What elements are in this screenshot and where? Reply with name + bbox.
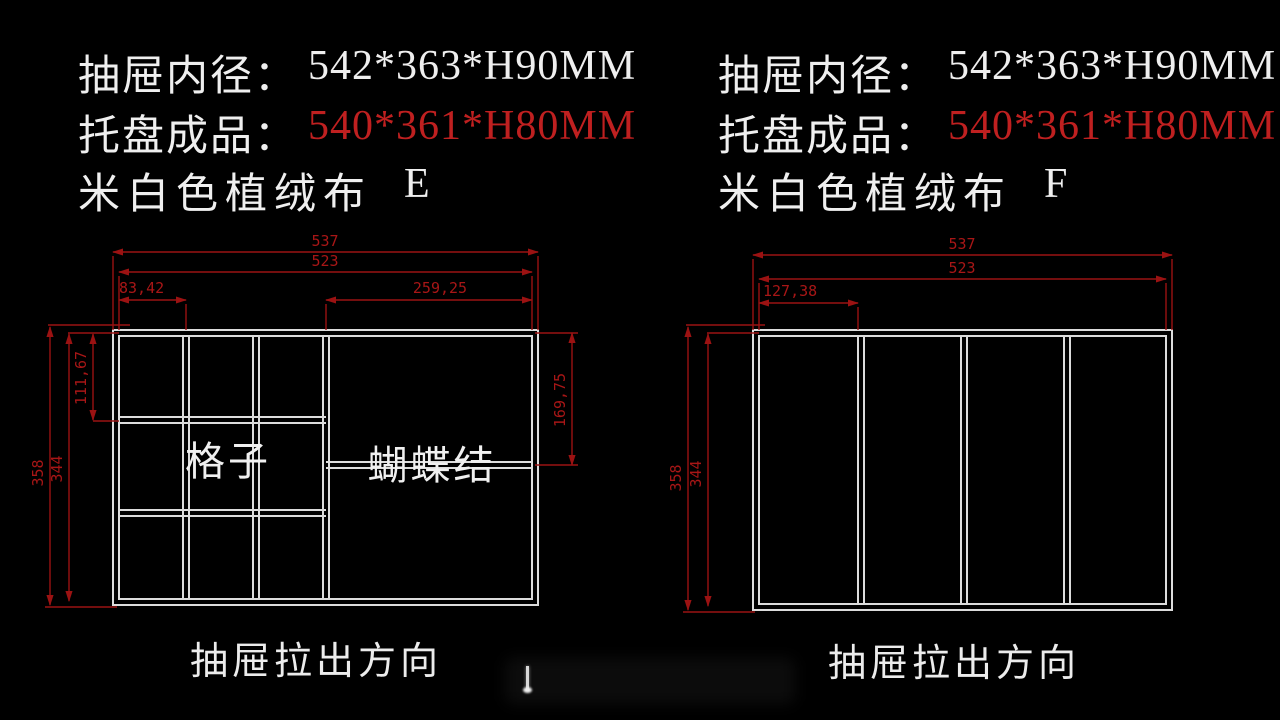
drawer-inner-size-label: 抽屉内径： <box>78 42 298 103</box>
dim-first-cell-height-e: 111,67 <box>72 334 119 421</box>
tray-drawing-e: 格子 蝴蝶结 537 523 83,42 259,25 358 344 111,… <box>20 230 620 630</box>
dim-first-cell-width-label: 83,42 <box>119 279 164 297</box>
panel-f-header-line3: 米白色植绒布 F <box>718 160 1067 221</box>
pull-direction-label-f: 抽屉拉出方向 <box>828 632 1080 687</box>
tray-drawing-f: 537 523 127,38 358 344 <box>670 230 1250 630</box>
dim-bow-divider-height-e: 169,75 <box>535 333 578 465</box>
grid-cell-label: 格子 <box>185 439 271 484</box>
fabric-label: 米白色植绒布 <box>78 160 372 221</box>
dim-first-cell-width-label: 127,38 <box>763 282 817 300</box>
panel-code-letter: F <box>1044 160 1067 208</box>
dim-overall-width-label: 537 <box>948 235 975 253</box>
tray-finished-size-label: 托盘成品： <box>718 102 938 163</box>
tray-finished-size-value: 540*361*H80MM <box>948 102 1276 150</box>
dim-overall-width-label: 537 <box>311 232 338 250</box>
panel-f-header-line2: 托盘成品： 540*361*H80MM <box>718 102 1276 163</box>
inner-rect <box>759 336 1166 604</box>
tray-outline-f <box>753 330 1172 610</box>
watermark-smudge <box>505 658 795 704</box>
drawer-inner-size-value: 542*363*H90MM <box>308 42 636 90</box>
dim-overall-height-label: 358 <box>670 464 685 491</box>
dim-bow-section-width-label: 259,25 <box>413 279 467 297</box>
tray-finished-size-label: 托盘成品： <box>78 102 298 163</box>
panel-e-header-line1: 抽屉内径： 542*363*H90MM <box>78 42 636 103</box>
dim-overall-height-f: 358 <box>670 325 765 612</box>
dim-inner-height-f: 344 <box>687 333 759 606</box>
dim-inner-height-label: 344 <box>687 460 705 487</box>
dim-first-cell-height-label: 111,67 <box>72 351 90 405</box>
dim-inner-width-label: 523 <box>311 252 338 270</box>
dim-inner-width-label: 523 <box>948 259 975 277</box>
dim-overall-height-label: 358 <box>29 459 47 486</box>
drawer-inner-size-value: 542*363*H90MM <box>948 42 1276 90</box>
tray-finished-size-value: 540*361*H80MM <box>308 102 636 150</box>
dim-bow-section-width-e: 259,25 <box>326 279 532 330</box>
pull-direction-label-e: 抽屉拉出方向 <box>190 630 442 685</box>
tray-dividers-f <box>858 336 1070 604</box>
dim-bow-divider-height-label: 169,75 <box>551 373 569 427</box>
outer-rect <box>753 330 1172 610</box>
panel-f-header-line1: 抽屉内径： 542*363*H90MM <box>718 42 1276 103</box>
cursor-artifact <box>526 666 529 691</box>
fabric-label: 米白色植绒布 <box>718 160 1012 221</box>
bow-cell-label: 蝴蝶结 <box>368 443 497 488</box>
panel-code-letter: E <box>404 160 430 208</box>
drawer-inner-size-label: 抽屉内径： <box>718 42 938 103</box>
panel-e-header-line2: 托盘成品： 540*361*H80MM <box>78 102 636 163</box>
dim-inner-height-label: 344 <box>48 455 66 482</box>
panel-e-header-line3: 米白色植绒布 E <box>78 160 430 221</box>
dim-inner-width-f: 523 <box>759 259 1166 330</box>
dim-first-cell-width-f: 127,38 <box>759 282 858 330</box>
dim-first-cell-width-e: 83,42 <box>119 279 186 330</box>
